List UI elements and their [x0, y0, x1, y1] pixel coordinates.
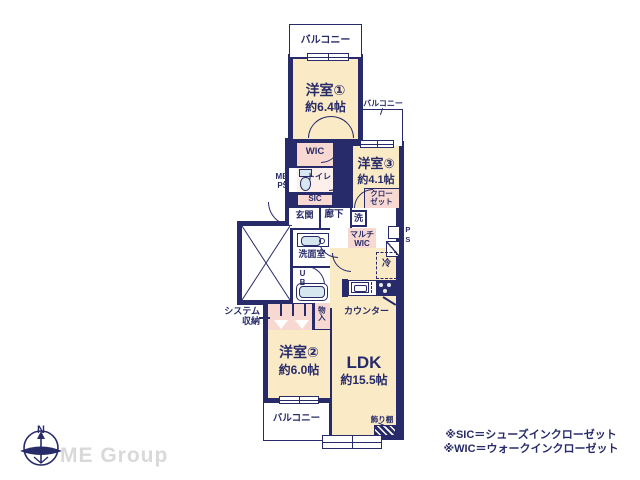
system-line2: 収納 [222, 316, 260, 326]
compass-bird-icon [20, 447, 62, 456]
mbps-label: MB PS [254, 173, 288, 191]
storage-divider [304, 304, 306, 316]
genkan-label: 玄関 [289, 210, 320, 220]
monoire-label: 物入 [317, 306, 325, 321]
ldk-name-label: LDK [332, 353, 396, 372]
room2-size-label: 約6.0帖 [268, 364, 330, 377]
mbps-leader [284, 181, 289, 182]
ps-left-text: PS [254, 182, 288, 191]
closet3-line2: ゼット [364, 198, 399, 206]
window-ldk [322, 435, 382, 449]
folding-door-mark [295, 320, 309, 329]
folding-door-mark [274, 320, 288, 329]
wic-label: WIC [297, 147, 333, 158]
floor-plan: バルコニー バルコニー バルコニー [0, 0, 640, 480]
company-logo: ME Group [60, 444, 180, 468]
legend-wic: ※WIC＝ウォークインクローゼット [438, 443, 624, 455]
unit-bath-label: UB [297, 269, 306, 287]
counter-label: カウンター [344, 306, 388, 316]
ps-right-leader [399, 231, 403, 232]
system-line1: システム [222, 306, 260, 316]
void-x-icon [242, 226, 290, 300]
sink-icon [351, 282, 369, 293]
room3-size-label: 約4.1帖 [350, 174, 402, 186]
sic-label: SIC [297, 195, 333, 204]
stove-icon [376, 281, 395, 295]
void-box [242, 226, 290, 300]
system-storage-label: システム 収納 [222, 306, 260, 326]
balcony-bottom-label: バルコニー [263, 414, 330, 425]
window-room2 [279, 396, 319, 404]
room3-name-label: 洋室③ [350, 157, 402, 172]
system-storage-leader [259, 317, 270, 319]
ldk-size-label: 約15.5帖 [330, 374, 398, 387]
balcony-top-label: バルコニー [289, 35, 362, 46]
room1-name-label: 洋室① [293, 83, 358, 99]
vanity-sink-icon [297, 233, 329, 247]
washer-label: 洗 [350, 213, 367, 223]
multi-wic-line2: WIC [348, 240, 376, 249]
ps-right-label: PS [403, 225, 411, 245]
mbps-shaft [289, 168, 297, 192]
ps-shaft-box [388, 226, 400, 239]
closet3-label: クロー ゼット [364, 190, 399, 207]
room1-size-label: 約6.4帖 [293, 101, 358, 114]
legend: ※SIC＝シューズインクローゼット ※WIC＝ウォークインクローゼット [438, 429, 624, 456]
washroom-label: 洗面室 [293, 249, 331, 259]
kitchen-counter [342, 279, 396, 297]
multi-wic-label: マルチ WIC [348, 231, 376, 249]
storage-divider [280, 304, 282, 316]
legend-sic: ※SIC＝シューズインクローゼット [438, 429, 624, 441]
toilet-label: トイレ [303, 173, 335, 182]
storage-divider [292, 304, 294, 316]
room2-name-label: 洋室② [268, 345, 330, 361]
hallway-label: 廊下 [319, 210, 349, 221]
window-room1 [307, 53, 349, 61]
fridge-label: 冷 [376, 258, 397, 268]
window-room3 [360, 140, 394, 148]
